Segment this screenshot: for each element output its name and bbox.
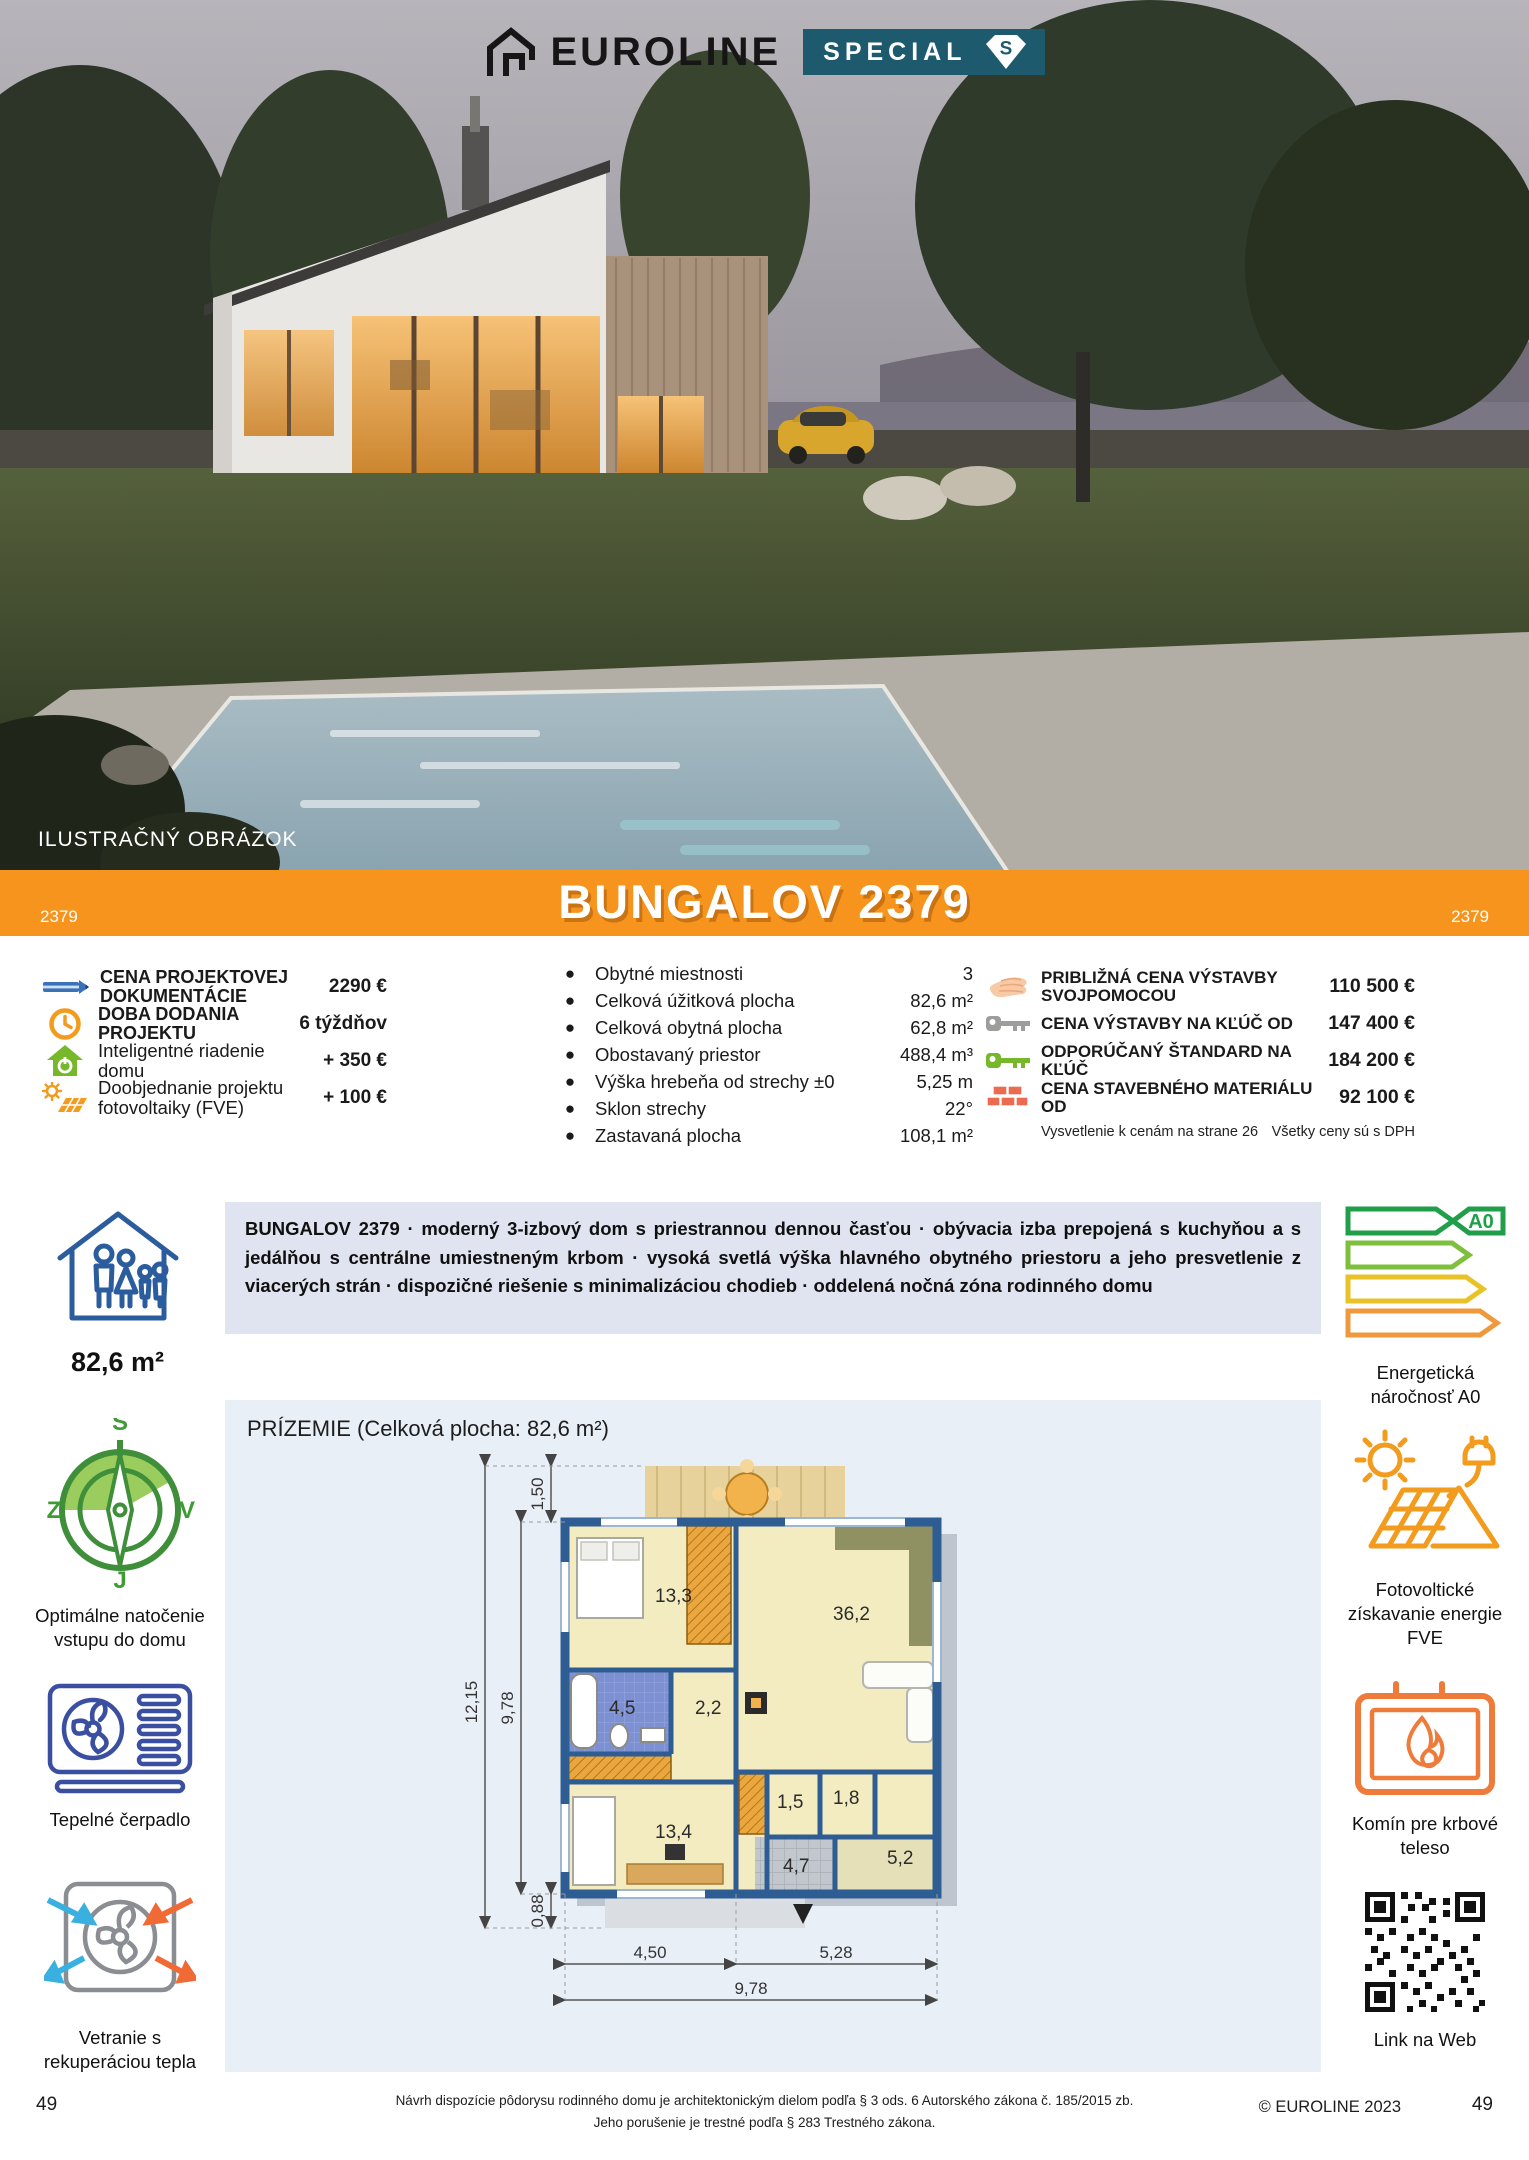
footnote-vat: Všetky ceny sú s DPH: [1272, 1124, 1415, 1140]
feature-photovoltaic: Fotovoltické získavanie energie FVE: [1330, 1424, 1520, 1650]
title-banner: 2379 BUNGALOV 2379 2379: [0, 870, 1529, 936]
room-area: 4,7: [783, 1856, 809, 1877]
project-description: BUNGALOV 2379 · moderný 3-izbový dom s p…: [225, 1202, 1321, 1334]
usable-area-block: 82,6 m²: [40, 1198, 195, 1378]
room-area: 2,2: [695, 1698, 721, 1719]
house-logo-icon: [484, 26, 538, 78]
features-left: S Z V J Optimálne natočenie vstupu do do…: [28, 1418, 212, 2104]
feature-ventilation: Vetranie s rekuperáciou tepla: [28, 1862, 212, 2074]
list-item: ODPORÚČANÝ ŠTANDARD NA KĽÚČ 184 200 €: [985, 1042, 1415, 1079]
list-item: Inteligentné riadenie domu + 350 €: [42, 1042, 387, 1079]
feature-caption: Fotovoltické získavanie energie FVE: [1330, 1578, 1520, 1650]
feature-heat-pump: Tepelné čerpadlo: [28, 1682, 212, 1832]
clock-icon: [42, 1007, 88, 1041]
list-item: Doobjednanie projektu fotovoltaiky (FVE)…: [42, 1079, 387, 1116]
room-area: 13,4: [655, 1822, 692, 1843]
key-gray-icon: [985, 1014, 1031, 1034]
dim-label: 12,15: [462, 1681, 481, 1724]
feature-compass: S Z V J Optimálne natočenie vstupu do do…: [28, 1418, 212, 1652]
dim-label: 1,50: [528, 1477, 547, 1510]
brand-bar: EUROLINE SPECIAL S: [0, 26, 1529, 78]
room-area: 1,5: [777, 1792, 803, 1813]
fireplace-icon: [1350, 1680, 1500, 1798]
bricks-icon: [985, 1085, 1031, 1110]
floorplan-title: PRÍZEMIE (Celková plocha: 82,6 m²): [247, 1416, 609, 1442]
bullet: ●: [545, 964, 595, 984]
feature-qr: Link na Web: [1330, 1890, 1520, 2052]
special-s-diamond-icon: S: [983, 33, 1029, 71]
energy-rating-block: A0 Energetická náročnosť A0: [1338, 1206, 1513, 1410]
list-item: ●Obostavaný priestor488,4 m³: [545, 1041, 973, 1068]
house-photo-illustration: [0, 0, 1529, 870]
heat-pump-icon: [45, 1682, 195, 1794]
catalog-page: EUROLINE SPECIAL S ILUSTRAČNÝ OBRÁZOK 23…: [0, 0, 1529, 2160]
bullet: ●: [545, 1099, 595, 1119]
project-price-list: CENA PROJEKTOVEJ DOKUMENTÁCIE 2290 € DOB…: [42, 968, 387, 1116]
list-item: ●Sklon strechy22°: [545, 1095, 973, 1122]
dim-label: 9,78: [498, 1691, 517, 1724]
svg-text:S: S: [999, 39, 1012, 60]
hand-icon: [985, 973, 1031, 1001]
feature-caption: Komín pre krbové teleso: [1330, 1812, 1520, 1860]
smart-home-icon: [42, 1044, 88, 1077]
project-code-right: 2379: [1451, 907, 1489, 927]
photovoltaic-icon: [1345, 1424, 1505, 1564]
svg-text:S: S: [112, 1418, 128, 1436]
feature-caption: Vetranie s rekuperáciou tepla: [28, 2026, 212, 2074]
room-area: 4,5: [609, 1698, 635, 1719]
svg-text:A0: A0: [1468, 1211, 1494, 1233]
list-item: DOBA DODANIA PROJEKTU 6 týždňov: [42, 1005, 387, 1042]
page-title: BUNGALOV 2379: [0, 870, 1529, 934]
brand-name: EUROLINE: [550, 30, 781, 75]
list-item: CENA PROJEKTOVEJ DOKUMENTÁCIE 2290 €: [42, 968, 387, 1005]
room-area: 13,3: [655, 1586, 692, 1607]
bullet: ●: [545, 1072, 595, 1092]
page-number-right: 49: [1472, 2094, 1493, 2116]
solar-panel-icon: [42, 1082, 88, 1114]
features-right: Fotovoltické získavanie energie FVE Komí…: [1330, 1424, 1520, 2082]
page-number-left: 49: [36, 2094, 57, 2116]
svg-text:Z: Z: [47, 1497, 62, 1524]
room-area: 1,8: [833, 1788, 859, 1809]
price-footnotes: Vysvetlenie k cenám na strane 26 Všetky …: [985, 1124, 1415, 1140]
compass-icon: S Z V J: [44, 1418, 196, 1590]
list-item: CENA VÝSTAVBY NA KĽÚČ OD 147 400 €: [985, 1005, 1415, 1042]
list-item: ●Celková úžitková plocha82,6 m²: [545, 987, 973, 1014]
construction-price-list: PRIBLIŽNÁ CENA VÝSTAVBY SVOJPOMOCOU 110 …: [985, 968, 1415, 1140]
key-green-icon: [985, 1051, 1031, 1071]
dim-label: 4,50: [633, 1943, 666, 1962]
list-item: CENA STAVEBNÉHO MATERIÁLU OD 92 100 €: [985, 1079, 1415, 1116]
special-badge: SPECIAL S: [803, 29, 1044, 75]
list-item: ●Obytné miestnosti3: [545, 960, 973, 987]
room-area: 36,2: [833, 1604, 870, 1625]
qr-code: [1363, 1890, 1487, 2014]
special-badge-label: SPECIAL: [823, 38, 966, 67]
parameters-list: ●Obytné miestnosti3 ●Celková úžitková pl…: [545, 960, 973, 1149]
svg-text:J: J: [113, 1567, 126, 1590]
photo-caption: ILUSTRAČNÝ OBRÁZOK: [38, 828, 298, 852]
hero-photo: EUROLINE SPECIAL S ILUSTRAČNÝ OBRÁZOK: [0, 0, 1529, 870]
pencil-icon: [42, 977, 90, 997]
footnote-pages: Vysvetlenie k cenám na strane 26: [1041, 1124, 1258, 1140]
bullet: ●: [545, 1018, 595, 1038]
svg-text:V: V: [179, 1497, 195, 1524]
list-item: PRIBLIŽNÁ CENA VÝSTAVBY SVOJPOMOCOU 110 …: [985, 968, 1415, 1005]
room-area: 5,2: [887, 1848, 913, 1869]
info-strip: CENA PROJEKTOVEJ DOKUMENTÁCIE 2290 € DOB…: [0, 936, 1529, 1194]
feature-caption: Tepelné čerpadlo: [50, 1808, 191, 1832]
list-item: ●Celková obytná plocha62,8 m²: [545, 1014, 973, 1041]
list-item: ●Zastavaná plocha108,1 m²: [545, 1122, 973, 1149]
dim-label: 5,28: [819, 1943, 852, 1962]
energy-caption: Energetická náročnosť A0: [1338, 1361, 1513, 1410]
copyright: © EUROLINE 2023: [1259, 2098, 1401, 2117]
dim-label: 9,78: [734, 1979, 767, 1998]
feature-caption: Optimálne natočenie vstupu do domu: [28, 1604, 212, 1652]
floorplan-panel: PRÍZEMIE (Celková plocha: 82,6 m²): [225, 1400, 1321, 2072]
ventilation-icon: [44, 1862, 196, 2012]
bullet: ●: [545, 1126, 595, 1146]
house-family-icon: [52, 1198, 184, 1326]
feature-caption: Link na Web: [1374, 2028, 1477, 2052]
energy-label-icon: A0: [1345, 1206, 1507, 1338]
euroline-logo: EUROLINE: [484, 26, 781, 78]
floorplan-drawing: 13,3 36,2 4,5 2,2 13,4 1,5 1,8 4,7 5,2: [365, 1452, 1165, 2052]
dim-label: 0,88: [528, 1894, 547, 1927]
project-code-left: 2379: [40, 907, 78, 927]
bullet: ●: [545, 991, 595, 1011]
usable-area-value: 82,6 m²: [40, 1347, 195, 1378]
feature-fireplace: Komín pre krbové teleso: [1330, 1680, 1520, 1860]
list-item: ●Výška hrebeňa od strechy ±05,25 m: [545, 1068, 973, 1095]
bullet: ●: [545, 1045, 595, 1065]
